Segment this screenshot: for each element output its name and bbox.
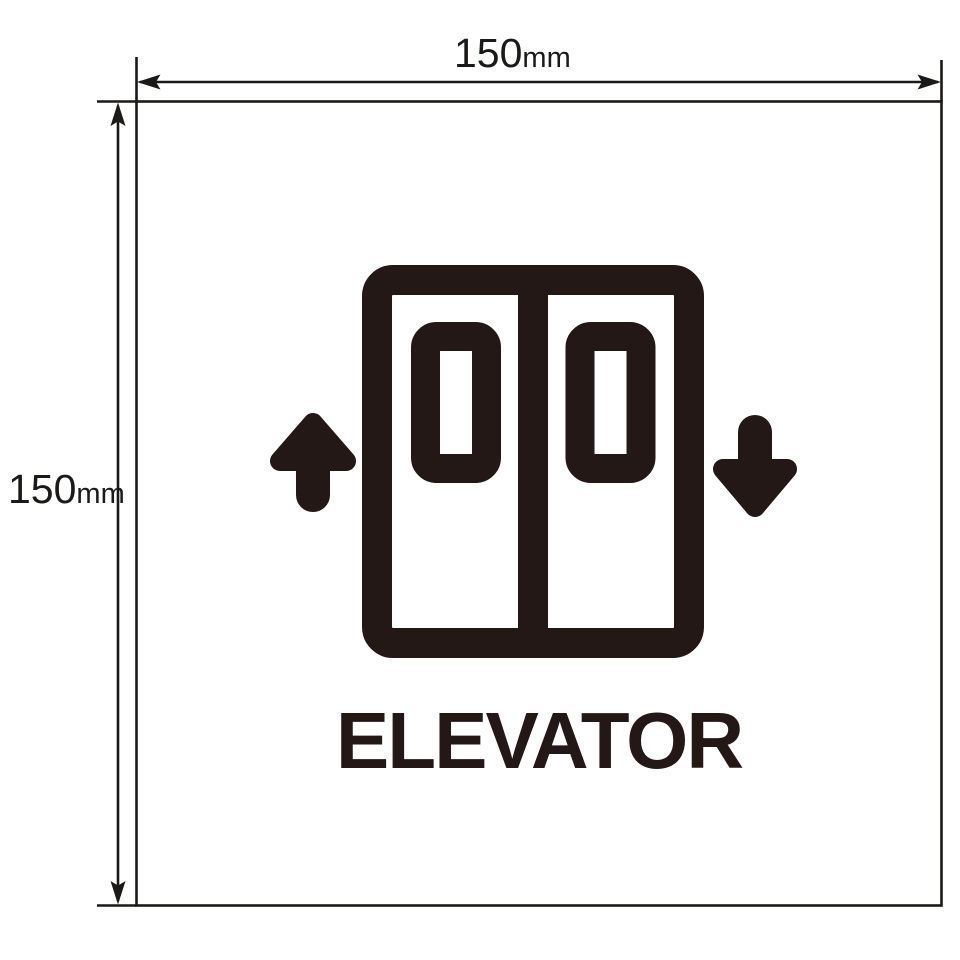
elevator-icon <box>280 272 787 650</box>
width-dimension-label: 150mm <box>454 33 571 74</box>
sign-title: ELEVATOR <box>136 701 942 781</box>
width-dimension-value: 150 <box>454 33 522 74</box>
width-dimension-unit: mm <box>522 44 570 73</box>
spec-drawing-canvas: 150mm 150mm ELEVATOR <box>0 0 960 960</box>
height-dimension-value: 150 <box>8 469 76 510</box>
height-dimension-unit: mm <box>76 480 124 509</box>
down-arrow-icon <box>723 432 787 507</box>
elevator-door-divider <box>518 272 548 650</box>
up-arrow-icon <box>280 423 346 495</box>
dimension-drawing <box>0 0 960 960</box>
down-arrow-head <box>723 469 787 507</box>
height-dimension-label: 150mm <box>8 469 125 510</box>
